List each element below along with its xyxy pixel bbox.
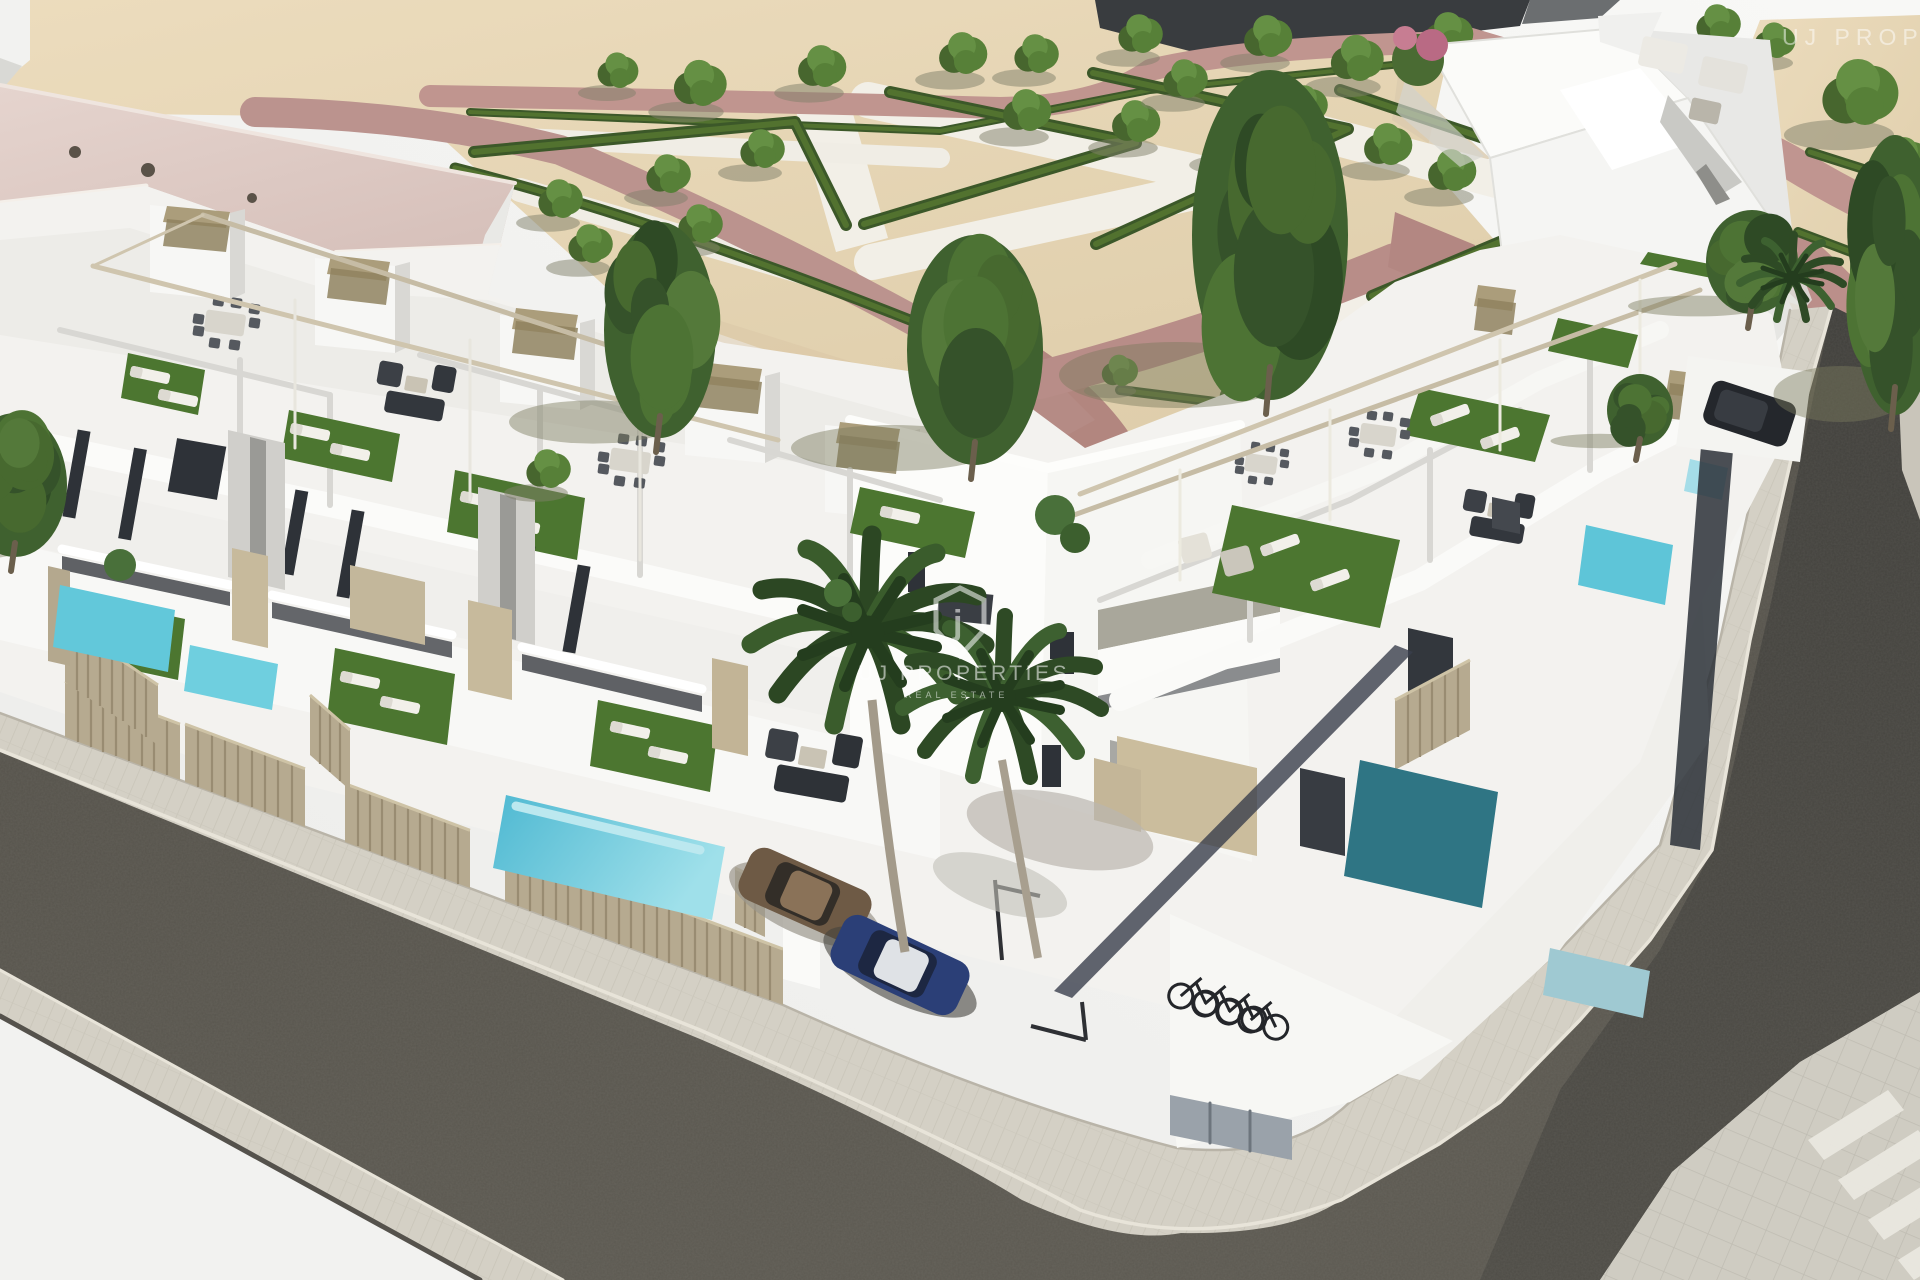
svg-text:UJ PROPERTIES: UJ PROPERTIES: [858, 662, 1070, 685]
svg-text:j: j: [952, 604, 962, 642]
svg-text:REAL ESTATE: REAL ESTATE: [905, 690, 1008, 700]
svg-text:UJ PROPE: UJ PROPE: [1782, 24, 1920, 50]
